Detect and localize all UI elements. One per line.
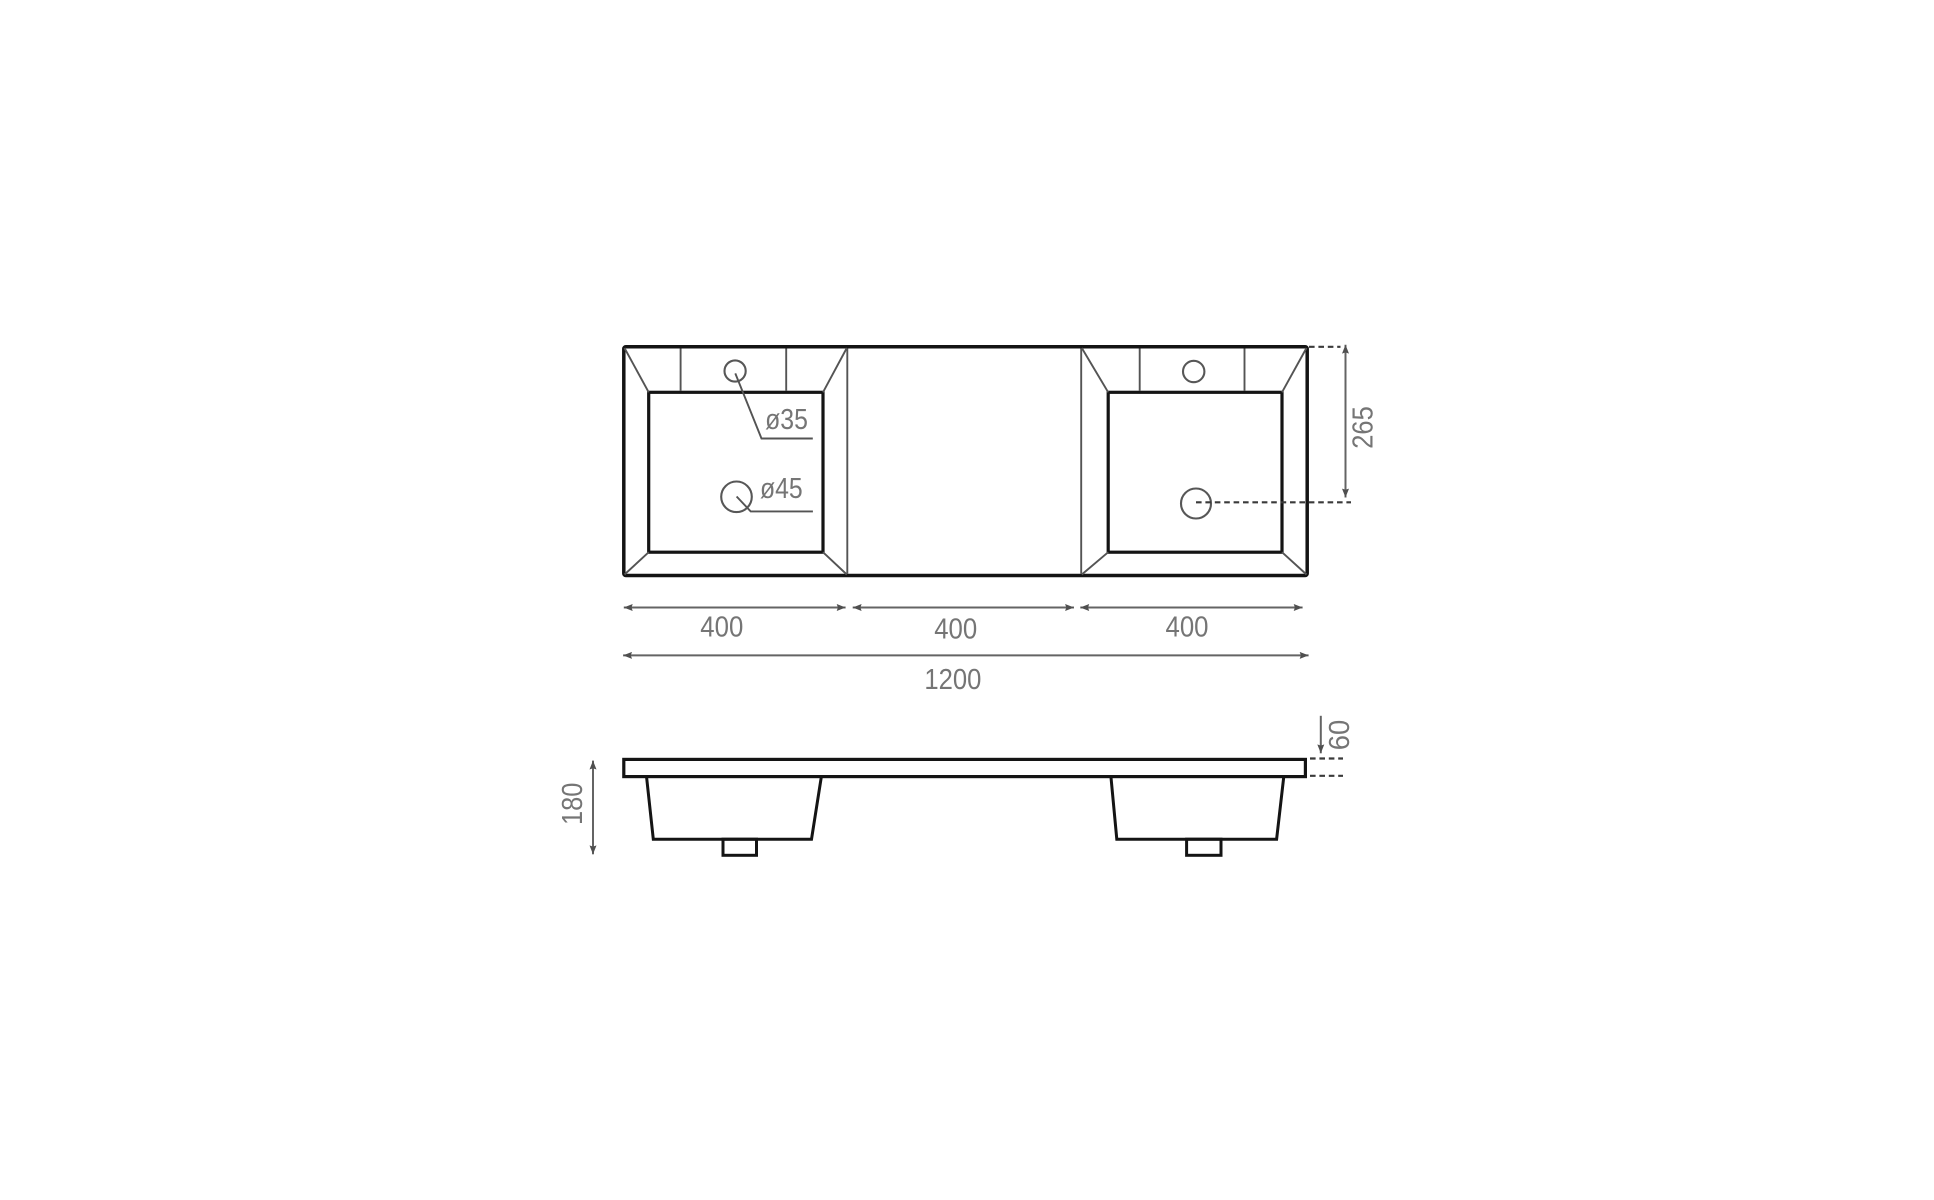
svg-text:180: 180 (557, 783, 589, 826)
svg-text:ø45: ø45 (760, 473, 803, 505)
svg-text:400: 400 (934, 614, 977, 646)
svg-text:265: 265 (1348, 406, 1380, 449)
svg-text:1200: 1200 (924, 664, 981, 696)
svg-text:400: 400 (700, 612, 743, 644)
svg-text:60: 60 (1324, 720, 1356, 751)
svg-text:ø35: ø35 (765, 403, 808, 435)
svg-text:400: 400 (1166, 612, 1209, 644)
